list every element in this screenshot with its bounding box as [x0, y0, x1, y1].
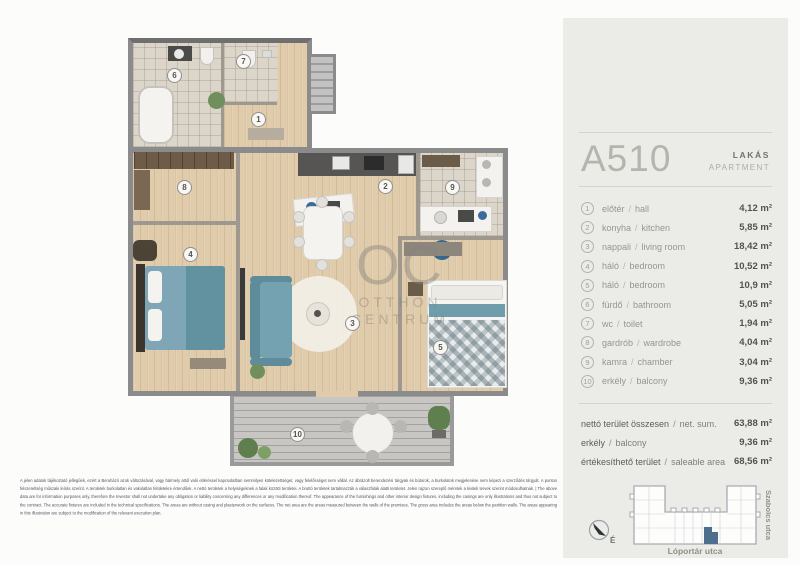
room-number-badge: 3: [581, 240, 594, 253]
room-name-en: wardrobe: [644, 338, 682, 348]
room-name-en: toilet: [624, 319, 643, 329]
room-name-en: chamber: [638, 357, 673, 367]
separator: /: [627, 300, 630, 310]
room-name-en: bathroom: [633, 300, 671, 310]
watermark-monogram: OC: [338, 236, 462, 294]
divider: [579, 132, 772, 133]
room-list-row: 3 nappali / living room 18,42 m²: [581, 237, 772, 256]
plant: [250, 364, 265, 379]
fridge: [398, 155, 414, 174]
plan-badge-bedroom2: 5: [433, 340, 448, 355]
summary-label-en: saleable area: [671, 457, 725, 467]
outdoor-chair: [366, 450, 379, 463]
room-name-hu: erkély: [602, 376, 626, 386]
room-name-hu: előtér: [602, 204, 625, 214]
summary-row: értékesíthető terület / saleable area 68…: [581, 452, 772, 471]
hob: [364, 156, 384, 170]
room-list-row: 4 háló / bedroom 10,52 m²: [581, 257, 772, 276]
separator: /: [665, 457, 668, 467]
bed-headboard: [136, 264, 145, 352]
room-list-row: 6 fürdő / bathroom 5,05 m²: [581, 295, 772, 314]
door-mat: [248, 128, 284, 140]
room-name-en: hall: [635, 204, 649, 214]
room-name-en: living room: [642, 242, 686, 252]
unit-info-panel: A510 LAKÁS APARTMENT 1 előtér / hall 4,1…: [563, 18, 788, 558]
room-name-en: kitchen: [642, 223, 671, 233]
room-list-row: 1 előtér / hall 4,12 m²: [581, 199, 772, 218]
room-area: 4,04 m²: [739, 337, 772, 348]
separator: /: [637, 338, 640, 348]
watermark-line1: OTTHON: [338, 294, 462, 311]
room-area: 3,04 m²: [739, 357, 772, 368]
toilet: [200, 47, 214, 65]
room-area: 4,12 m²: [739, 203, 772, 214]
separator: /: [629, 204, 632, 214]
unit-type-hu: LAKÁS: [709, 150, 770, 160]
room-number-badge: 1: [581, 202, 594, 215]
floor-plan: OC OTTHON CENTRUM 1 2 3 4 5 6 7 8 9 10: [0, 0, 560, 470]
outdoor-chair: [394, 420, 407, 433]
plant: [238, 438, 258, 458]
sink: [174, 49, 184, 59]
room-number-badge: 5: [581, 279, 594, 292]
summary-label-hu: értékesíthető terület: [581, 457, 661, 467]
room-name-hu: wc: [602, 319, 613, 329]
balcony-door-opening: [316, 391, 358, 397]
plan-badge-kitchen: 2: [378, 179, 393, 194]
plant: [428, 406, 450, 430]
wardrobe-cabinets: [134, 152, 234, 169]
summary-value: 63,88 m²: [734, 418, 772, 429]
summary-value: 9,36 m²: [739, 437, 772, 448]
sink: [434, 211, 447, 224]
separator: /: [635, 242, 638, 252]
separator: /: [635, 223, 638, 233]
building-outline: [630, 486, 760, 544]
wardrobe-side-cabinet: [134, 170, 150, 210]
room-number-badge: 8: [581, 336, 594, 349]
separator: /: [630, 376, 633, 386]
washer-drum: [482, 160, 491, 169]
plan-badge-living: 3: [345, 316, 360, 331]
separator: /: [623, 280, 626, 290]
bathtub: [138, 86, 174, 144]
decor: [314, 310, 321, 317]
pillow: [148, 271, 162, 303]
bowl: [478, 211, 487, 220]
room-name-hu: nappali: [602, 242, 631, 252]
room-area: 10,52 m²: [734, 261, 772, 272]
summary-label-en: net. sum.: [680, 419, 717, 429]
room-list-row: 10 erkély / balcony 9,36 m²: [581, 372, 772, 391]
room-area: 5,05 m²: [739, 299, 772, 310]
street-label-bottom: Lóportár utca: [668, 546, 723, 556]
room-area: 9,36 m²: [739, 376, 772, 387]
room-number-badge: 9: [581, 356, 594, 369]
separator: /: [617, 319, 620, 329]
otthon-centrum-watermark: OC OTTHON CENTRUM: [338, 236, 462, 328]
plan-badge-wc: 7: [236, 54, 251, 69]
plan-badge-hall: 1: [251, 112, 266, 127]
armchair: [133, 240, 157, 261]
room-list-row: 7 wc / toilet 1,94 m²: [581, 314, 772, 333]
room-list: 1 előtér / hall 4,12 m² 2 konyha / kitch…: [581, 199, 772, 391]
blanket: [186, 266, 225, 350]
summary-label-hu: nettó terület összesen: [581, 419, 669, 429]
pillow: [148, 309, 162, 341]
north-label: É: [610, 536, 616, 545]
legal-disclaimer: A jelen adatok tájékoztató jellegűek, ez…: [20, 477, 557, 537]
room-number-badge: 7: [581, 317, 594, 330]
plan-badge-bedroom1: 4: [183, 247, 198, 262]
outdoor-chair: [366, 402, 379, 415]
separator: /: [631, 357, 634, 367]
outdoor-chair: [340, 420, 353, 433]
room-name-en: bedroom: [630, 280, 666, 290]
room-list-row: 8 gardrób / wardrobe 4,04 m²: [581, 333, 772, 352]
divider: [579, 403, 772, 404]
room-name-hu: háló: [602, 261, 619, 271]
separator: /: [609, 438, 612, 448]
summary-row: nettó terület összesen / net. sum. 63,88…: [581, 414, 772, 433]
shelf: [422, 155, 460, 167]
wall-partition: [221, 102, 277, 105]
street-label-right: Szabolcs utca: [764, 490, 771, 541]
unit-code: A510: [581, 138, 671, 180]
summary-label-en: balcony: [616, 438, 647, 448]
unit-type-en: APARTMENT: [709, 163, 770, 172]
room-number-badge: 10: [581, 375, 594, 388]
room-name-hu: konyha: [602, 223, 631, 233]
room-name-en: balcony: [637, 376, 668, 386]
site-map: É: [579, 470, 771, 556]
planter-pot: [432, 430, 446, 438]
plan-badge-wardrobe: 8: [177, 180, 192, 195]
room-name-hu: fürdő: [602, 300, 623, 310]
dining-table: [303, 206, 343, 260]
divider: [579, 186, 772, 187]
hand-basin: [262, 50, 272, 58]
sofa-seat: [260, 282, 292, 358]
plant: [208, 92, 225, 109]
room-area: 1,94 m²: [739, 318, 772, 329]
room-name-hu: kamra: [602, 357, 627, 367]
tv-console: [240, 268, 245, 340]
room-name-hu: gardrób: [602, 338, 633, 348]
outdoor-table: [352, 412, 394, 454]
plan-badge-chamber: 9: [445, 180, 460, 195]
room-area: 10,9 m²: [739, 280, 772, 291]
chair: [316, 259, 328, 271]
dryer-drum: [482, 178, 491, 187]
room-area: 18,42 m²: [734, 241, 772, 252]
room-number-badge: 2: [581, 221, 594, 234]
unit-type: LAKÁS APARTMENT: [709, 150, 770, 172]
chair: [293, 236, 305, 248]
wall-partition: [133, 221, 240, 225]
summary-row: erkély / balcony 9,36 m²: [581, 433, 772, 452]
bench: [190, 358, 226, 369]
summary-value: 68,56 m²: [734, 456, 772, 467]
legal-disclaimer-text: A jelen adatok tájékoztató jellegűek, ez…: [20, 477, 557, 518]
apartment-datasheet-page: OC OTTHON CENTRUM 1 2 3 4 5 6 7 8 9 10 A…: [0, 0, 800, 565]
room-list-row: 5 háló / bedroom 10,9 m²: [581, 276, 772, 295]
stairwell: [308, 54, 336, 114]
north-compass-icon: [590, 521, 609, 540]
room-name-en: bedroom: [630, 261, 666, 271]
room-number-badge: 6: [581, 298, 594, 311]
separator: /: [673, 419, 676, 429]
cabinet: [458, 210, 474, 222]
plan-badge-bathroom: 6: [167, 68, 182, 83]
chair: [343, 211, 355, 223]
kitchen-sink: [332, 156, 350, 170]
summary-label-hu: erkély: [581, 438, 605, 448]
room-area: 5,85 m²: [739, 222, 772, 233]
room-list-row: 2 konyha / kitchen 5,85 m²: [581, 218, 772, 237]
plant: [258, 446, 271, 459]
area-summary: nettó terület összesen / net. sum. 63,88…: [581, 414, 772, 471]
chair: [316, 196, 328, 208]
room-number-badge: 4: [581, 260, 594, 273]
room-name-hu: háló: [602, 280, 619, 290]
plan-badge-balcony: 10: [290, 427, 305, 442]
room-list-row: 9 kamra / chamber 3,04 m²: [581, 353, 772, 372]
separator: /: [623, 261, 626, 271]
chair: [293, 211, 305, 223]
